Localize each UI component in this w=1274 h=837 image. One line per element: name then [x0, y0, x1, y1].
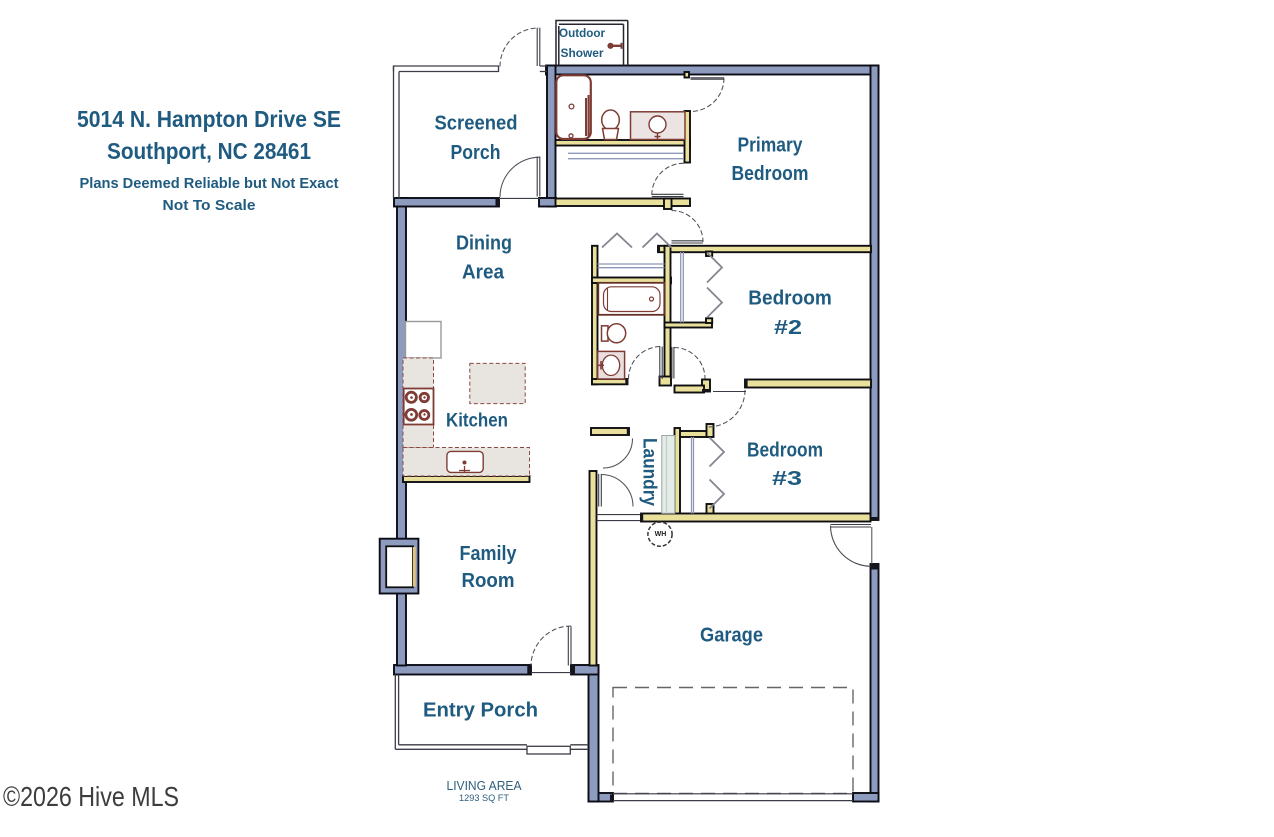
svg-text:Area: Area	[462, 262, 505, 284]
svg-text:Dining: Dining	[456, 233, 512, 255]
svg-text:Bedroom: Bedroom	[747, 440, 823, 462]
svg-text:#2: #2	[774, 317, 802, 339]
svg-text:Plans Deemed Reliable but Not: Plans Deemed Reliable but Not Exact	[80, 176, 339, 192]
svg-text:Bedroom: Bedroom	[732, 163, 809, 185]
svg-text:Southport, NC 28461: Southport, NC 28461	[107, 138, 311, 164]
svg-text:©2026 Hive MLS: ©2026 Hive MLS	[3, 781, 179, 812]
svg-text:Family: Family	[460, 543, 518, 565]
svg-text:Porch: Porch	[451, 142, 501, 164]
svg-text:Outdoor: Outdoor	[559, 26, 605, 40]
svg-text:Entry Porch: Entry Porch	[423, 700, 538, 722]
svg-text:Not To Scale: Not To Scale	[163, 197, 256, 214]
svg-text:Screened: Screened	[435, 113, 518, 135]
svg-text:Kitchen: Kitchen	[446, 410, 508, 432]
svg-text:WH: WH	[655, 531, 667, 538]
svg-text:1293 SQ FT: 1293 SQ FT	[459, 793, 509, 804]
svg-text:Shower: Shower	[561, 46, 604, 60]
svg-text:5014 N. Hampton Drive SE: 5014 N. Hampton Drive SE	[77, 106, 341, 132]
svg-text:LIVING AREA: LIVING AREA	[447, 779, 523, 793]
svg-text:#3: #3	[772, 468, 802, 490]
svg-text:Garage: Garage	[700, 624, 763, 647]
svg-text:Primary: Primary	[738, 135, 804, 157]
svg-text:Bedroom: Bedroom	[748, 288, 832, 310]
svg-text:Room: Room	[462, 570, 515, 592]
svg-text:Laundry: Laundry	[639, 438, 660, 506]
